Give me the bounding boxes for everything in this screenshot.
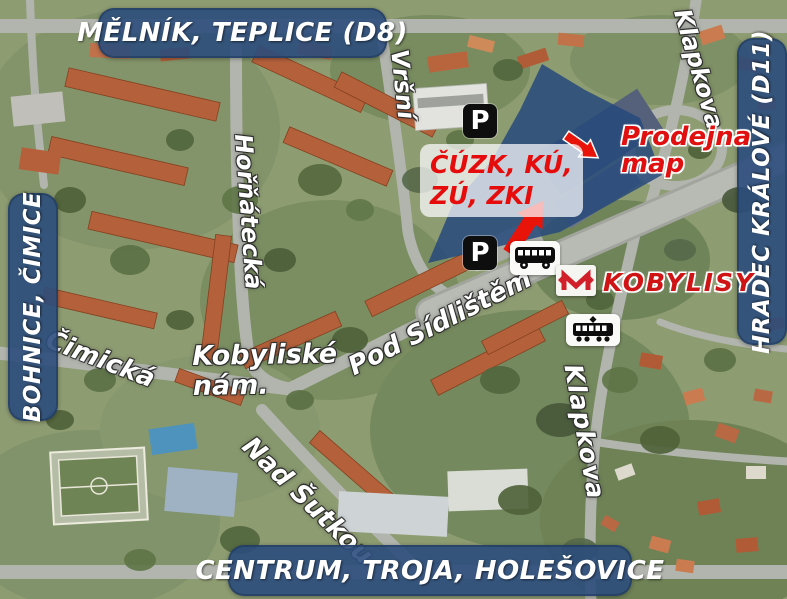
map-shop-line2: map xyxy=(621,151,751,178)
bus-glyph xyxy=(514,245,556,271)
street-label-kobyliske-nam: Kobyliské nám. xyxy=(192,339,338,401)
banner-east-label: HRADEC KRÁLOVÉ (D11) xyxy=(749,30,775,354)
parking-icon-south: P xyxy=(463,236,497,270)
tram-glyph xyxy=(570,316,616,344)
parking-letter: P xyxy=(470,106,489,136)
banner-south-centrum-troja: CENTRUM, TROJA, HOLEŠOVICE xyxy=(228,545,632,596)
office-callout-cuzk: ČÚZK, KÚ, ZÚ, ZKI xyxy=(420,144,583,217)
banner-south-label: CENTRUM, TROJA, HOLEŠOVICE xyxy=(195,556,664,586)
banner-east-hradec-kralove: HRADEC KRÁLOVÉ (D11) xyxy=(737,38,787,345)
map-shop-line1: Prodejna xyxy=(621,124,751,151)
bus-icon xyxy=(510,241,560,275)
metro-m-glyph xyxy=(558,267,594,294)
metro-station-name: KOBYLISY xyxy=(603,270,755,296)
tram-icon xyxy=(566,314,620,346)
banner-north-melnik-teplice: MĚLNÍK, TEPLICE (D8) xyxy=(98,8,387,58)
kobyliske-line2: nám. xyxy=(193,369,338,401)
prague-metro-logo xyxy=(556,265,596,296)
banner-west-bohnice-cimice: BOHNICE, ČIMICE xyxy=(8,193,58,421)
parking-icon-north: P xyxy=(463,104,497,138)
banner-west-label: BOHNICE, ČIMICE xyxy=(20,192,46,422)
kobylisy-area-map: MĚLNÍK, TEPLICE (D8) BOHNICE, ČIMICE HRA… xyxy=(0,0,787,599)
office-line2: ZÚ, ZKI xyxy=(430,180,573,211)
map-shop-callout: Prodejna map xyxy=(621,124,751,179)
sports-field xyxy=(50,448,148,525)
kobyliske-line1: Kobyliské xyxy=(192,339,337,371)
office-line1: ČÚZK, KÚ, xyxy=(430,149,573,180)
banner-north-label: MĚLNÍK, TEPLICE (D8) xyxy=(77,18,408,48)
parking-letter: P xyxy=(470,238,489,268)
